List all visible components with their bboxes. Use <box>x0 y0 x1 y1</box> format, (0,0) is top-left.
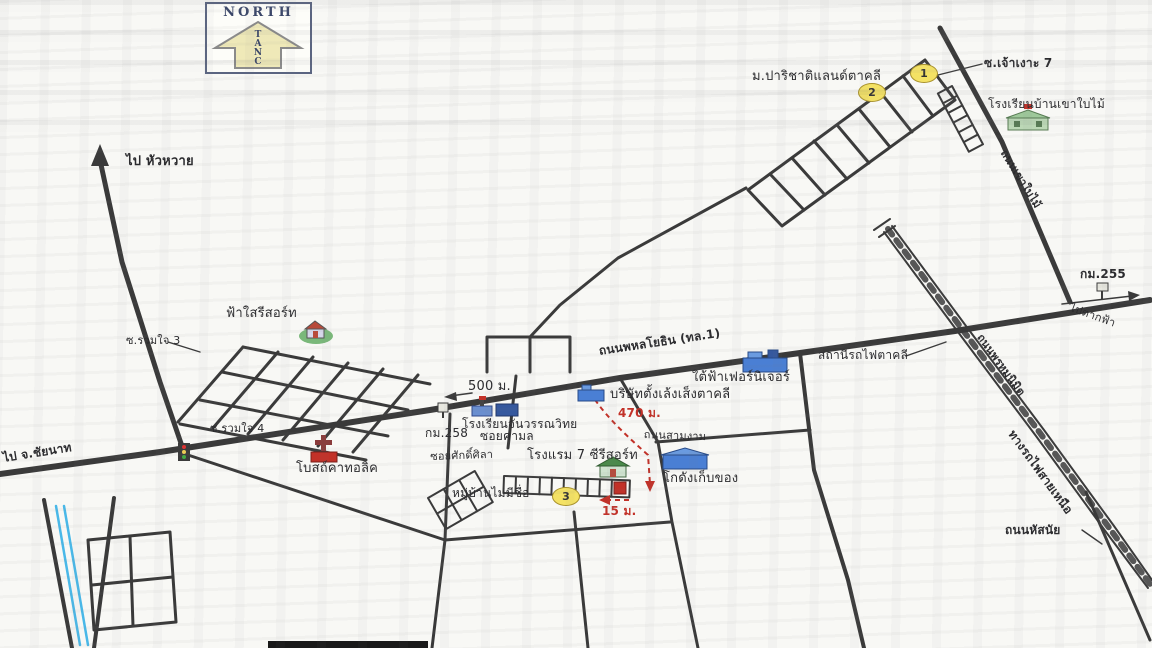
compass-north-label: NORTH <box>207 5 310 20</box>
label-fasai-resort: ฟ้าใสรีสอร์ท <box>226 307 297 321</box>
map-drawing <box>0 0 1152 648</box>
road-to-huawai <box>100 160 184 452</box>
north-arrow-icon: TANC <box>207 20 310 70</box>
label-dist-470m: 470 ม. <box>618 407 661 420</box>
red-plot-marker <box>614 482 626 494</box>
map-badge-1: 1 <box>910 64 938 83</box>
label-km-258: กม.258 <box>425 427 468 440</box>
compass-letter-C: C <box>254 57 261 67</box>
label-taifa-furniture: ใต้ฟ้าเฟอร์นิเจอร์ <box>692 371 790 385</box>
label-soi-khamon: ซอยคามล <box>480 430 534 443</box>
parichat-subdivision <box>748 60 955 226</box>
takhli-hand-drawn-map: NORTH TANC ไป หัวหวายม.ปาริชาติแลนด์ตาคล… <box>0 0 1152 648</box>
company-building-icon <box>578 385 604 401</box>
label-soi-sak-sila: ซอยศักดิ์ศิลา <box>430 449 493 463</box>
km258-marker-icon <box>438 403 448 418</box>
label-km-255: กม.255 <box>1080 268 1126 281</box>
church-cross-icon <box>311 435 337 462</box>
compass-rose: NORTH TANC <box>205 2 312 74</box>
north-arrowhead-icon <box>91 144 109 166</box>
compass-letters: TANC <box>254 30 263 67</box>
label-soi-ruamjai-4: ซ.รวมใจ 4 <box>210 423 264 435</box>
label-hatsanai-road: ถนนหัสนัย <box>1005 524 1061 537</box>
road-bottom-center <box>574 512 588 648</box>
label-hotel-7c-resort: โรงแรม 7 ซีรีสอร์ท <box>527 449 638 463</box>
label-soi-chao-ngo-7: ซ.เจ้าเงาะ 7 <box>984 57 1052 70</box>
label-soi-ruamjai-3: ซ.รวมใจ 3 <box>126 335 180 347</box>
road-to-subdivision <box>530 188 746 337</box>
label-takhli-station: สถานีรถไฟตาคลี <box>818 349 908 362</box>
block-above-highway <box>487 337 570 372</box>
label-dist-15m: 15 ม. <box>602 505 636 518</box>
label-parichat-land: ม.ปาริชาติแลนด์ตาคลี <box>752 70 881 84</box>
map-badge-2: 2 <box>858 83 886 102</box>
km255-marker-icon <box>1097 283 1108 299</box>
map-badge-3: 3 <box>552 487 580 506</box>
label-to-huawai: ไป หัวหวาย <box>126 155 194 169</box>
label-sam-ngam-road: ถนนสามงาม <box>644 429 707 443</box>
traffic-light-icon <box>178 443 190 461</box>
warehouse-icon <box>661 448 709 469</box>
road-right-vertical <box>800 353 864 648</box>
scan-artifact-bar <box>268 641 428 648</box>
label-unnamed-village: หมู่บ้านไม่มีชื่อ <box>452 487 530 500</box>
label-ban-khao-baimai-school: โรงเรียนบ้านเขาใบไม้ <box>988 98 1105 111</box>
road-connector-y540 <box>445 522 670 540</box>
label-catholic-church: โบสถ์คาทอลิค <box>296 462 378 476</box>
village-plot-grid <box>428 471 493 529</box>
label-tang-leng-seng-company: บริษัทตั้งเล้งเส็งตาคลี <box>610 388 730 402</box>
road-bottom-stub-left <box>432 540 445 648</box>
label-dist-500m: 500 ม. <box>468 380 511 394</box>
resort-house-icon <box>299 321 333 344</box>
road-south-left-b <box>94 498 114 648</box>
label-storage-warehouse: โกดังเก็บของ <box>663 472 738 486</box>
